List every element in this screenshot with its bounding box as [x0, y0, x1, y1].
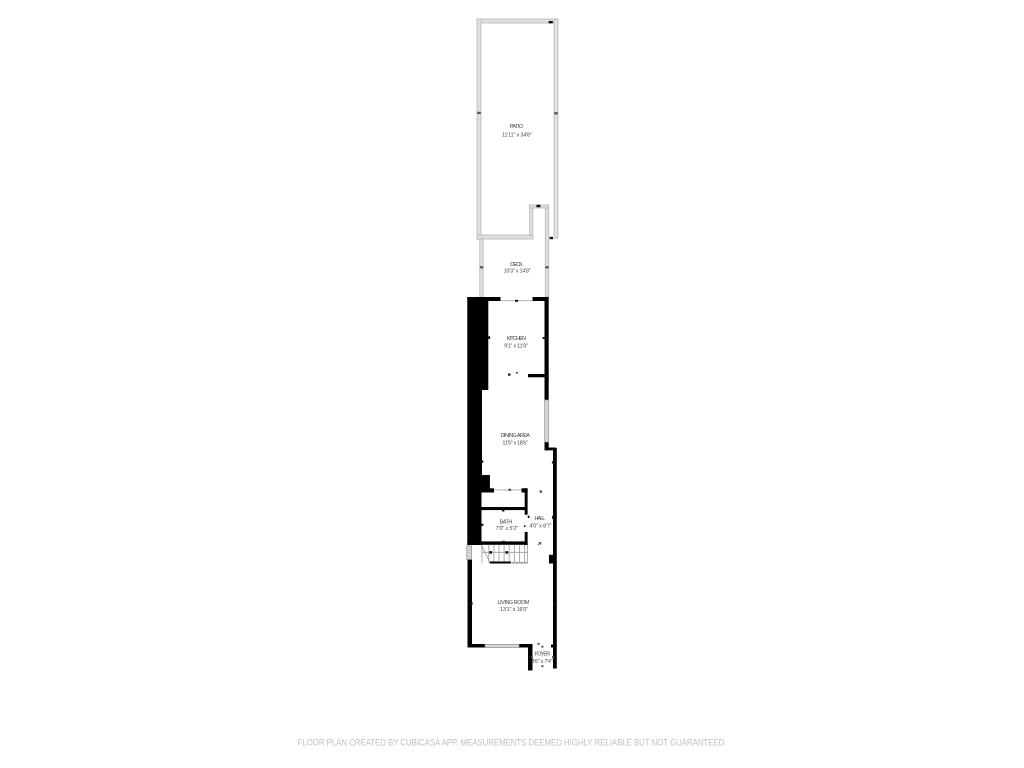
- svg-text:7'0" x 5'2": 7'0" x 5'2": [496, 526, 519, 532]
- svg-text:DINING AREA: DINING AREA: [501, 433, 531, 439]
- svg-text:BATH: BATH: [500, 519, 513, 525]
- svg-text:9'1" x 11'9": 9'1" x 11'9": [504, 343, 528, 349]
- svg-text:DECK: DECK: [510, 262, 523, 268]
- svg-text:11'11" x 34'8": 11'11" x 34'8": [502, 132, 532, 138]
- svg-text:PATIO: PATIO: [510, 124, 524, 130]
- svg-text:4'0" x 8'7": 4'0" x 8'7": [530, 523, 552, 529]
- svg-text:13'1" x 16'0": 13'1" x 16'0": [500, 607, 528, 613]
- svg-text:10'3" x 14'8": 10'3" x 14'8": [504, 269, 531, 275]
- svg-text:LIVING ROOM: LIVING ROOM: [498, 600, 530, 606]
- svg-text:HALL: HALL: [535, 516, 546, 522]
- svg-text:KITCHEN: KITCHEN: [507, 336, 526, 342]
- svg-text:11'5" x 18'6": 11'5" x 18'6": [503, 440, 528, 446]
- svg-text:3'6" x 7'4": 3'6" x 7'4": [532, 659, 553, 665]
- svg-text:FLOOR PLAN CREATED BY CUBICASA: FLOOR PLAN CREATED BY CUBICASA APP. MEAS…: [298, 737, 727, 747]
- svg-text:FOYER: FOYER: [535, 652, 550, 658]
